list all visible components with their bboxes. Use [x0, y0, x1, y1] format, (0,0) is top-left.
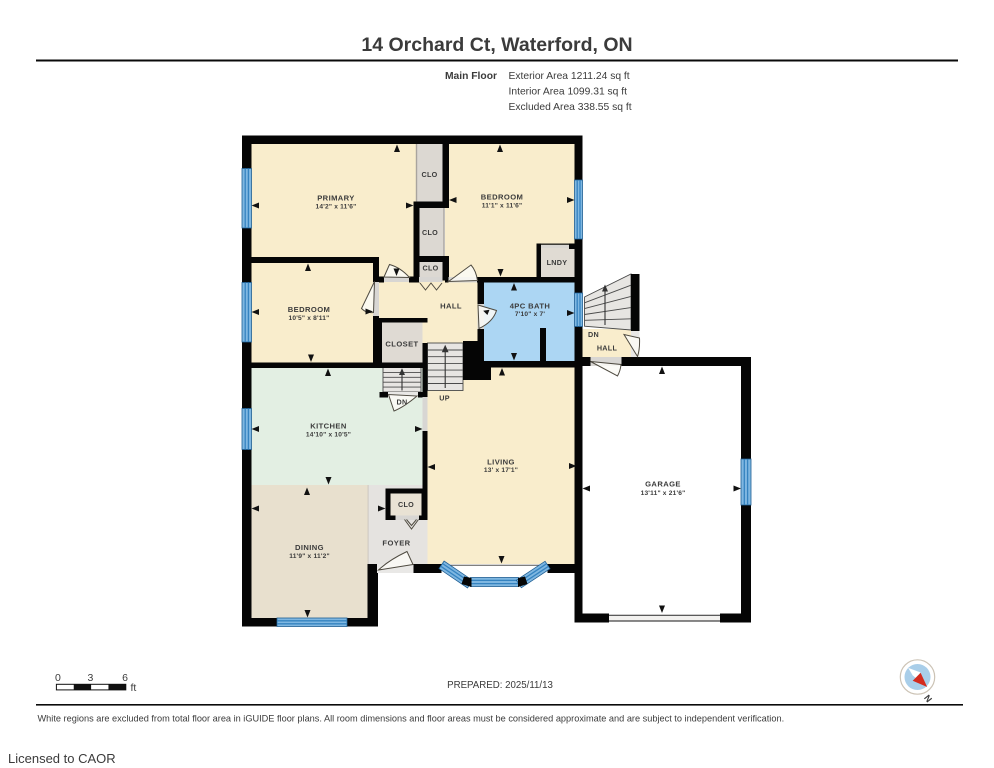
svg-text:CLO: CLO [422, 264, 438, 273]
svg-text:LNDY: LNDY [547, 258, 568, 267]
svg-text:DN: DN [397, 398, 408, 407]
svg-text:HALL: HALL [440, 302, 462, 311]
svg-text:DN: DN [588, 330, 599, 339]
svg-text:0: 0 [55, 672, 61, 684]
svg-text:BEDROOM: BEDROOM [481, 193, 523, 202]
svg-text:Interior Area 1099.31 sq ft: Interior Area 1099.31 sq ft [509, 87, 628, 98]
svg-text:7'10" x 7': 7'10" x 7' [515, 311, 545, 318]
svg-text:14 Orchard Ct, Waterford, ON: 14 Orchard Ct, Waterford, ON [361, 34, 632, 56]
svg-text:LIVING: LIVING [487, 458, 515, 467]
svg-text:DINING: DINING [295, 543, 324, 552]
svg-text:KITCHEN: KITCHEN [310, 422, 347, 431]
svg-text:CLOSET: CLOSET [385, 340, 418, 349]
svg-text:11'9" x 11'2": 11'9" x 11'2" [289, 553, 330, 560]
svg-text:13'11" x 21'6": 13'11" x 21'6" [641, 490, 686, 497]
svg-text:BEDROOM: BEDROOM [288, 305, 330, 314]
svg-text:PREPARED: 2025/11/13: PREPARED: 2025/11/13 [447, 680, 553, 691]
svg-text:3: 3 [87, 672, 93, 684]
svg-text:CLO: CLO [421, 170, 437, 179]
svg-text:Main Floor: Main Floor [445, 71, 497, 82]
svg-text:HALL: HALL [597, 344, 618, 353]
svg-text:14'2" x 11'6": 14'2" x 11'6" [316, 204, 357, 211]
svg-text:Exterior Area 1211.24 sq ft: Exterior Area 1211.24 sq ft [509, 71, 630, 82]
svg-text:PRIMARY: PRIMARY [317, 194, 355, 203]
svg-text:UP: UP [439, 394, 450, 403]
svg-text:6: 6 [122, 672, 128, 684]
svg-text:10'5" x 8'11": 10'5" x 8'11" [289, 315, 330, 322]
svg-text:White regions are excluded fro: White regions are excluded from total fl… [38, 714, 785, 724]
svg-text:Excluded Area 338.55 sq ft: Excluded Area 338.55 sq ft [509, 102, 632, 113]
svg-text:FOYER: FOYER [382, 539, 410, 548]
svg-text:GARAGE: GARAGE [645, 480, 681, 489]
svg-text:11'1" x 11'6": 11'1" x 11'6" [482, 203, 523, 210]
svg-text:Licensed to CAOR: Licensed to CAOR [8, 751, 116, 766]
svg-text:14'10" x 10'5": 14'10" x 10'5" [306, 432, 351, 439]
svg-text:4PC BATH: 4PC BATH [510, 302, 551, 311]
svg-text:N: N [922, 693, 934, 704]
svg-text:13' x 17'1": 13' x 17'1" [484, 467, 518, 474]
svg-text:CLO: CLO [422, 228, 438, 237]
svg-text:CLO: CLO [398, 500, 414, 509]
svg-text:ft: ft [131, 682, 137, 694]
